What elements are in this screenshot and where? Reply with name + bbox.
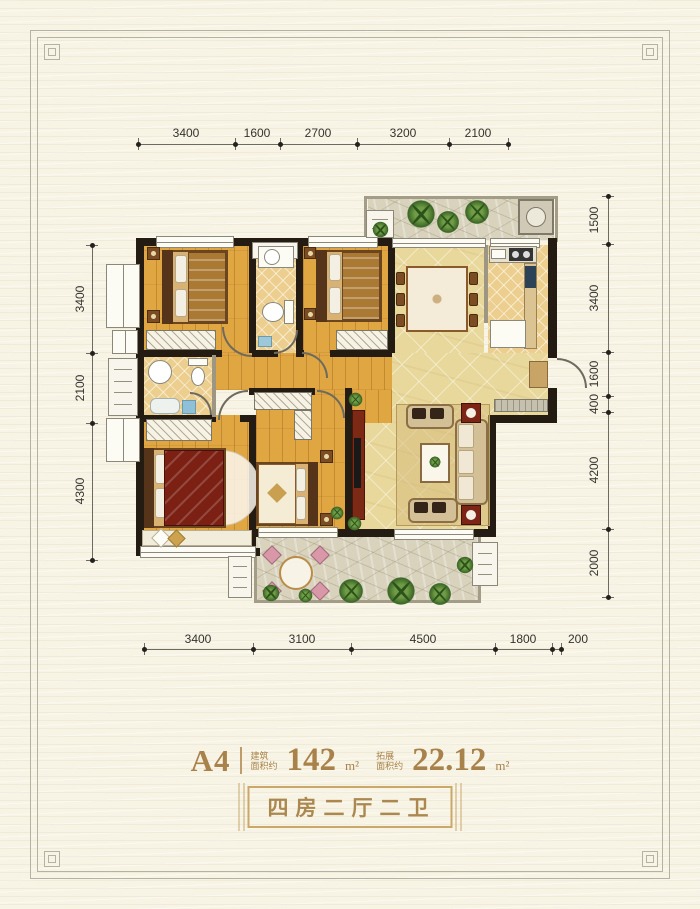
building-sublabel: 面积约: [251, 761, 278, 771]
ac-unit: [472, 542, 498, 586]
expansion-sublabel: 面积约: [376, 761, 403, 771]
partition-wall: [212, 355, 216, 417]
tick-dot: [355, 142, 360, 147]
kitchen-sink: [491, 249, 506, 259]
wardrobe: [336, 330, 388, 350]
cushion: [412, 408, 426, 419]
balcony-door-window: [394, 529, 474, 540]
pillow: [296, 468, 306, 492]
plant-icon: [338, 578, 364, 604]
balcony-door-window: [392, 238, 486, 248]
plant-icon: [298, 588, 313, 603]
dimension-line-top: [138, 144, 508, 145]
wall: [388, 241, 395, 353]
dim-label: 3400: [185, 632, 212, 646]
tick-dot: [606, 595, 611, 600]
tv: [354, 438, 361, 488]
tick-dot: [506, 142, 511, 147]
plant-icon: [428, 582, 452, 606]
plant-icon: [429, 456, 441, 468]
bath-accessory: [258, 336, 272, 347]
pillow: [296, 496, 306, 520]
tick-dot: [233, 142, 238, 147]
tick-dot: [90, 351, 95, 356]
window: [258, 527, 338, 538]
frame-corner-ornament: [44, 851, 60, 867]
nightstand: [320, 450, 333, 463]
window: [112, 330, 138, 354]
plant-icon: [436, 210, 460, 234]
dining-chair: [469, 314, 478, 327]
window: [106, 418, 140, 462]
sofa-cushion: [458, 476, 474, 500]
tick-dot: [606, 527, 611, 532]
toilet: [191, 367, 205, 386]
tick-dot: [90, 421, 95, 426]
wardrobe: [294, 410, 312, 440]
expansion-area-label: 拓展 面积约: [376, 751, 403, 771]
wall: [330, 350, 392, 357]
dim-label: 1600: [244, 126, 271, 140]
dimension-line-left: [92, 245, 93, 560]
dim-label: 3400: [73, 286, 87, 313]
building-area-value: 142: [287, 742, 337, 779]
layout-tag: 四房二厅二卫: [248, 786, 453, 828]
tick-dot: [606, 350, 611, 355]
kitchen-appliance: [525, 266, 536, 288]
bed-headboard: [144, 448, 154, 528]
tick-dot: [447, 142, 452, 147]
toilet: [262, 302, 284, 322]
dim-label: 2100: [465, 126, 492, 140]
blanket: [164, 450, 224, 526]
wardrobe: [146, 419, 212, 441]
dim-label: 1600: [587, 361, 601, 388]
tick-dot: [136, 142, 141, 147]
sofa-cushion: [458, 450, 474, 474]
patio-table: [279, 556, 313, 590]
bed-headboard: [308, 462, 318, 526]
fridge: [490, 320, 526, 348]
console-table: [494, 399, 548, 412]
dining-chair: [396, 293, 405, 306]
dim-label: 2700: [305, 126, 332, 140]
title-block: A4 建筑 面积约 142 m² 拓展 面积约 22.12 m²: [0, 742, 700, 779]
dim-label: 2100: [73, 375, 87, 402]
pillow: [175, 255, 187, 283]
burner: [523, 251, 530, 258]
plant-icon: [347, 516, 362, 531]
partition-wall: [484, 245, 488, 323]
dim-label: 4200: [587, 457, 601, 484]
dim-label: 2000: [587, 550, 601, 577]
plant-icon: [386, 576, 416, 606]
plant-icon: [348, 392, 363, 407]
shoe-cabinet: [529, 361, 548, 388]
side-table-top: [466, 408, 476, 418]
bed-headboard: [162, 250, 173, 324]
title-divider: [240, 747, 242, 774]
tick-dot: [349, 647, 354, 652]
wardrobe: [146, 330, 216, 350]
dining-table: [406, 266, 468, 332]
cushion: [414, 502, 428, 513]
tick-dot: [606, 242, 611, 247]
dining-chair: [469, 293, 478, 306]
pillow: [329, 254, 341, 281]
tick-dot: [251, 647, 256, 652]
floorplan-page: 3400 1600 2700 3200 2100 3400 2100 4300 …: [0, 0, 700, 909]
pillow: [329, 287, 341, 314]
plant-icon: [464, 199, 490, 225]
plant-icon: [456, 556, 474, 574]
blanket: [188, 252, 226, 322]
wall: [136, 350, 222, 357]
tick-dot: [550, 647, 555, 652]
side-table-top: [466, 510, 476, 520]
dim-label: 4500: [410, 632, 437, 646]
dim-label: 4300: [73, 478, 87, 505]
building-label: 建筑: [251, 751, 269, 761]
laundry-basin: [526, 207, 546, 227]
dim-label: 3100: [289, 632, 316, 646]
dim-label: 200: [568, 632, 588, 646]
ac-unit: [228, 556, 252, 598]
sink: [264, 249, 280, 265]
plant-icon: [262, 584, 280, 602]
toilet-tank: [284, 300, 294, 324]
tick-dot: [606, 394, 611, 399]
expansion-label: 拓展: [376, 751, 394, 761]
dining-chair: [469, 272, 478, 285]
plant-icon: [372, 221, 389, 238]
tick-dot: [559, 647, 564, 652]
pillow: [175, 289, 187, 317]
dining-chair: [396, 314, 405, 327]
dining-chair: [396, 272, 405, 285]
tick-dot: [493, 647, 498, 652]
building-area-label: 建筑 面积约: [251, 751, 278, 771]
nightstand: [147, 310, 160, 323]
frame-corner-ornament: [642, 851, 658, 867]
wardrobe: [254, 392, 312, 410]
towel-basket: [150, 398, 180, 414]
dim-label: 3400: [587, 285, 601, 312]
bed-headboard: [316, 250, 327, 322]
tick-dot: [90, 243, 95, 248]
sofa-cushion: [458, 424, 474, 448]
tick-dot: [278, 142, 283, 147]
blanket: [342, 252, 380, 320]
dim-label: 1500: [587, 207, 601, 234]
balcony-rail: [254, 556, 257, 603]
dim-label: 400: [587, 394, 601, 414]
unit-name: A4: [191, 743, 231, 779]
window: [156, 236, 234, 248]
frame-corner-ornament: [642, 44, 658, 60]
dim-label: 3400: [173, 126, 200, 140]
sink: [148, 360, 172, 384]
bay-window: [106, 264, 140, 328]
wall: [548, 238, 557, 358]
tick-dot: [90, 558, 95, 563]
nightstand: [304, 308, 316, 320]
wall: [345, 388, 352, 536]
tick-dot: [606, 410, 611, 415]
toilet-tank: [188, 358, 208, 366]
plant-icon: [330, 506, 344, 520]
cushion: [432, 502, 446, 513]
expansion-area-unit: m²: [495, 758, 509, 779]
cushion: [430, 408, 444, 419]
burner: [512, 251, 519, 258]
nightstand: [147, 247, 160, 260]
tick-dot: [142, 647, 147, 652]
balcony-rail: [555, 196, 558, 242]
building-area-unit: m²: [345, 758, 359, 779]
wall: [488, 415, 557, 423]
nightstand: [304, 247, 316, 259]
plant-icon: [406, 199, 436, 229]
dim-label: 1800: [510, 632, 537, 646]
tick-dot: [606, 194, 611, 199]
expansion-area-value: 22.12: [412, 742, 486, 779]
dim-label: 3200: [390, 126, 417, 140]
frame-corner-ornament: [44, 44, 60, 60]
ac-unit: [108, 358, 138, 416]
